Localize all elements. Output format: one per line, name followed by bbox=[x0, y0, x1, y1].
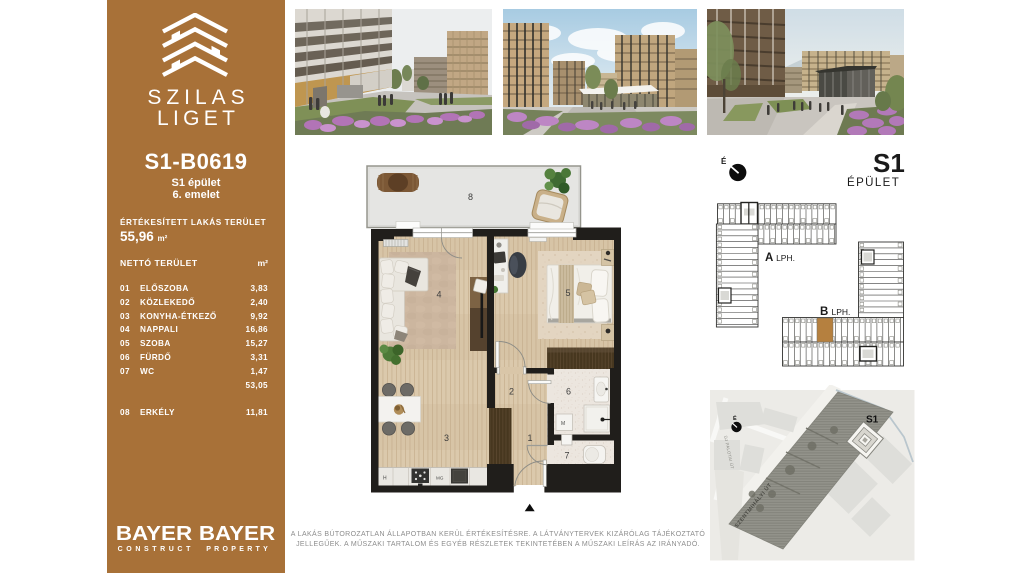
svg-text:S1: S1 bbox=[873, 148, 905, 178]
svg-text:6: 6 bbox=[566, 387, 571, 397]
svg-text:S1: S1 bbox=[866, 415, 879, 426]
svg-text:1: 1 bbox=[528, 433, 533, 443]
svg-text:5: 5 bbox=[566, 288, 571, 298]
svg-text:A LPH.: A LPH. bbox=[765, 252, 795, 264]
svg-text:M: M bbox=[561, 421, 565, 427]
svg-text:7: 7 bbox=[565, 451, 570, 461]
svg-text:É: É bbox=[721, 157, 727, 166]
svg-text:2: 2 bbox=[509, 387, 514, 397]
svg-text:B LPH.: B LPH. bbox=[820, 306, 850, 318]
svg-text:ÉPÜLET: ÉPÜLET bbox=[847, 176, 900, 189]
svg-text:4: 4 bbox=[437, 290, 442, 300]
svg-text:3: 3 bbox=[444, 433, 449, 443]
svg-text:8: 8 bbox=[468, 192, 473, 202]
svg-text:MG: MG bbox=[436, 476, 444, 481]
svg-text:H: H bbox=[383, 476, 387, 482]
svg-text:É: É bbox=[733, 414, 737, 422]
